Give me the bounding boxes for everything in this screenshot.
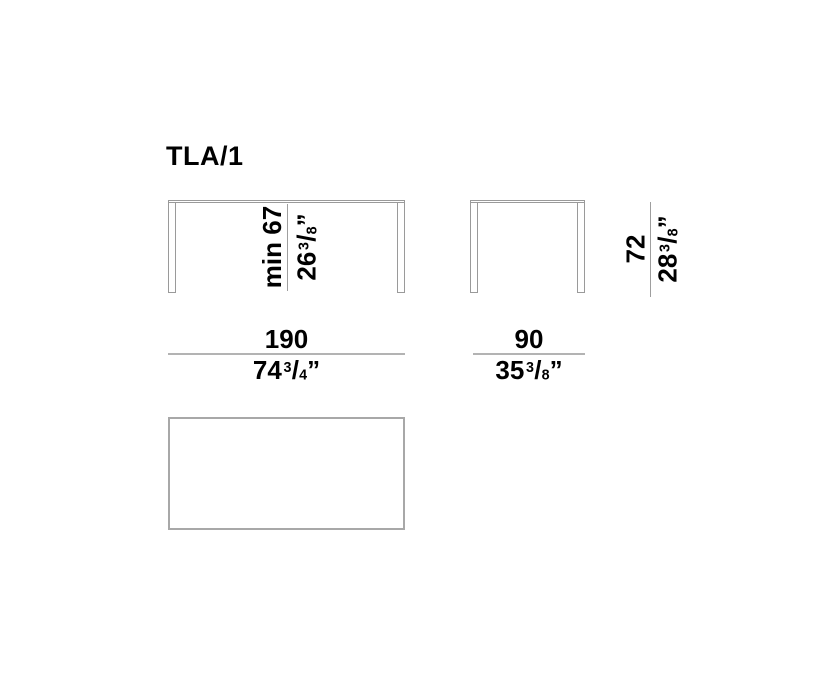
- inch-mark: ”: [307, 355, 320, 385]
- imperial-numerator: 3: [283, 360, 291, 376]
- imperial-numerator: 3: [526, 360, 534, 376]
- imperial-denominator: 8: [542, 368, 550, 384]
- fraction-slash: /: [653, 237, 683, 244]
- imperial-denominator: 4: [299, 368, 307, 384]
- front-height-imperial-label: 263/8”: [294, 213, 320, 280]
- front-tabletop: [168, 200, 405, 203]
- side-view: [470, 200, 585, 293]
- side-height-imperial-label: 283/8”: [655, 215, 681, 282]
- front-width-dim: 190 743/4”: [168, 326, 405, 384]
- side-width-imperial: 353/8”: [473, 357, 585, 383]
- imperial-whole: 26: [292, 252, 322, 281]
- front-leg-right: [397, 202, 405, 293]
- fraction-slash: /: [292, 235, 322, 242]
- imperial-denominator: 8: [305, 226, 321, 234]
- inch-mark: ”: [292, 213, 322, 226]
- side-leg-right: [577, 202, 585, 293]
- front-height-metric-label: min 67: [259, 206, 285, 288]
- fraction-slash: /: [534, 355, 541, 385]
- imperial-whole: 74: [253, 355, 282, 385]
- fraction-slash: /: [292, 355, 299, 385]
- front-width-imperial: 743/4”: [168, 357, 405, 383]
- product-title: TLA/1: [166, 141, 244, 172]
- imperial-whole: 28: [653, 254, 683, 283]
- side-tabletop: [470, 200, 585, 203]
- front-width-metric: 190: [168, 326, 405, 352]
- top-view: [168, 417, 405, 530]
- side-leg-left: [470, 202, 478, 293]
- imperial-numerator: 3: [658, 244, 674, 252]
- imperial-numerator: 3: [297, 242, 313, 250]
- front-leg-left: [168, 202, 176, 293]
- inch-mark: ”: [550, 355, 563, 385]
- side-height-metric-label: 72: [622, 235, 648, 264]
- inch-mark: ”: [653, 215, 683, 228]
- imperial-denominator: 8: [666, 228, 682, 236]
- side-width-dim: 90 353/8”: [473, 326, 585, 384]
- imperial-whole: 35: [495, 355, 524, 385]
- side-width-metric: 90: [473, 326, 585, 352]
- drawing-canvas: TLA/1 min 67 263/8” 72 283/8” 190 743/4”…: [0, 0, 840, 679]
